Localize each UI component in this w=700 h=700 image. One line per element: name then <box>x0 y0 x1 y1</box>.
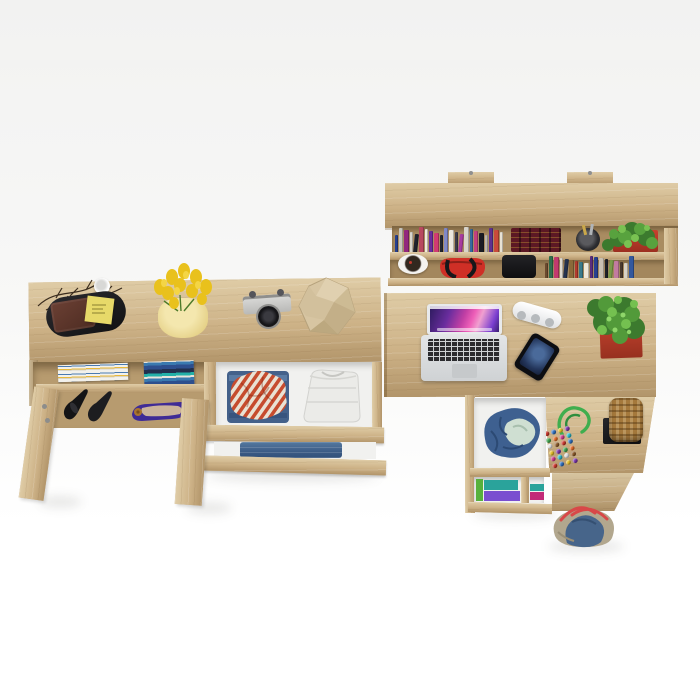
bead <box>550 456 556 462</box>
bead <box>559 434 565 440</box>
wicker-basket <box>609 398 643 442</box>
blue-clothes-pile <box>477 401 545 465</box>
folded-clothes <box>484 491 520 501</box>
bead <box>555 448 561 454</box>
bead <box>572 457 578 463</box>
scene <box>0 0 700 700</box>
bead <box>566 432 572 438</box>
bead <box>547 443 553 449</box>
corner-desk <box>0 0 700 700</box>
bead <box>570 451 576 457</box>
bead <box>565 459 571 465</box>
succulent-plant <box>576 288 654 352</box>
bead <box>554 442 560 448</box>
bead <box>551 429 557 435</box>
folded-clothes <box>476 479 483 501</box>
laptop-keyboard <box>428 339 500 361</box>
pedestal-rail <box>470 468 550 477</box>
bead <box>545 437 551 443</box>
folded-clothes <box>530 484 544 491</box>
socket <box>545 318 554 327</box>
bead <box>558 460 564 466</box>
bead <box>552 435 558 441</box>
bead <box>557 427 563 433</box>
folded-clothes <box>530 492 544 500</box>
bead <box>564 452 570 458</box>
laptop-trackpad <box>452 364 477 378</box>
bead <box>549 450 555 456</box>
bead <box>552 462 558 468</box>
pedestal-base <box>468 502 552 514</box>
bead <box>564 426 570 432</box>
bead <box>562 446 568 452</box>
bead <box>569 444 575 450</box>
bead <box>561 440 567 446</box>
denim-bag <box>548 498 620 550</box>
laptop-dock <box>437 328 492 331</box>
bead <box>557 454 563 460</box>
socket <box>531 314 540 323</box>
laptop-menubar <box>430 306 499 309</box>
shelf-divider <box>521 477 529 503</box>
folded-clothes <box>484 480 518 490</box>
bead <box>567 438 573 444</box>
